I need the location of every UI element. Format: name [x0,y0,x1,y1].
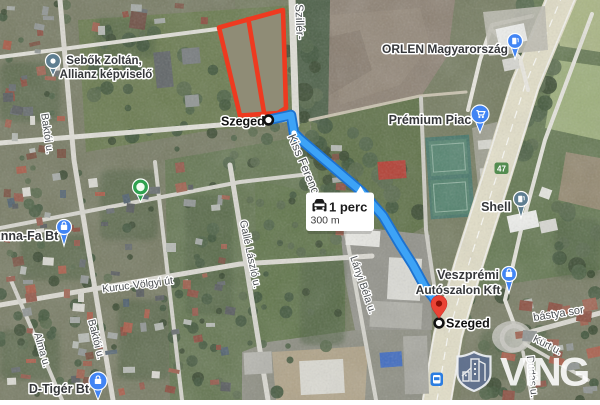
svg-text:Szeged: Szeged [446,317,490,331]
svg-text:Veszprémi: Veszprémi [437,268,499,282]
svg-text:Prémium Piac: Prémium Piac [389,113,472,127]
svg-text:Autószalon Kft: Autószalon Kft [416,283,501,297]
svg-text:Szillér-: Szillér- [292,4,305,40]
svg-text:Allianz képviselő: Allianz képviselő [60,69,153,81]
svg-text:Anna-Fa Bt: Anna-Fa Bt [0,229,59,243]
svg-text:Sebők Zoltán,: Sebők Zoltán, [66,55,141,67]
svg-text:ORLEN Magyarország: ORLEN Magyarország [382,42,508,56]
svg-text:1 perc: 1 perc [329,200,367,215]
svg-text:47: 47 [497,165,506,174]
svg-text:Shell: Shell [481,200,511,214]
svg-text:300 m: 300 m [311,215,340,227]
svg-text:D-Tigér Bt: D-Tigér Bt [29,382,90,396]
svg-text:Szeged: Szeged [221,115,265,129]
svg-text:VING: VING [500,351,588,395]
